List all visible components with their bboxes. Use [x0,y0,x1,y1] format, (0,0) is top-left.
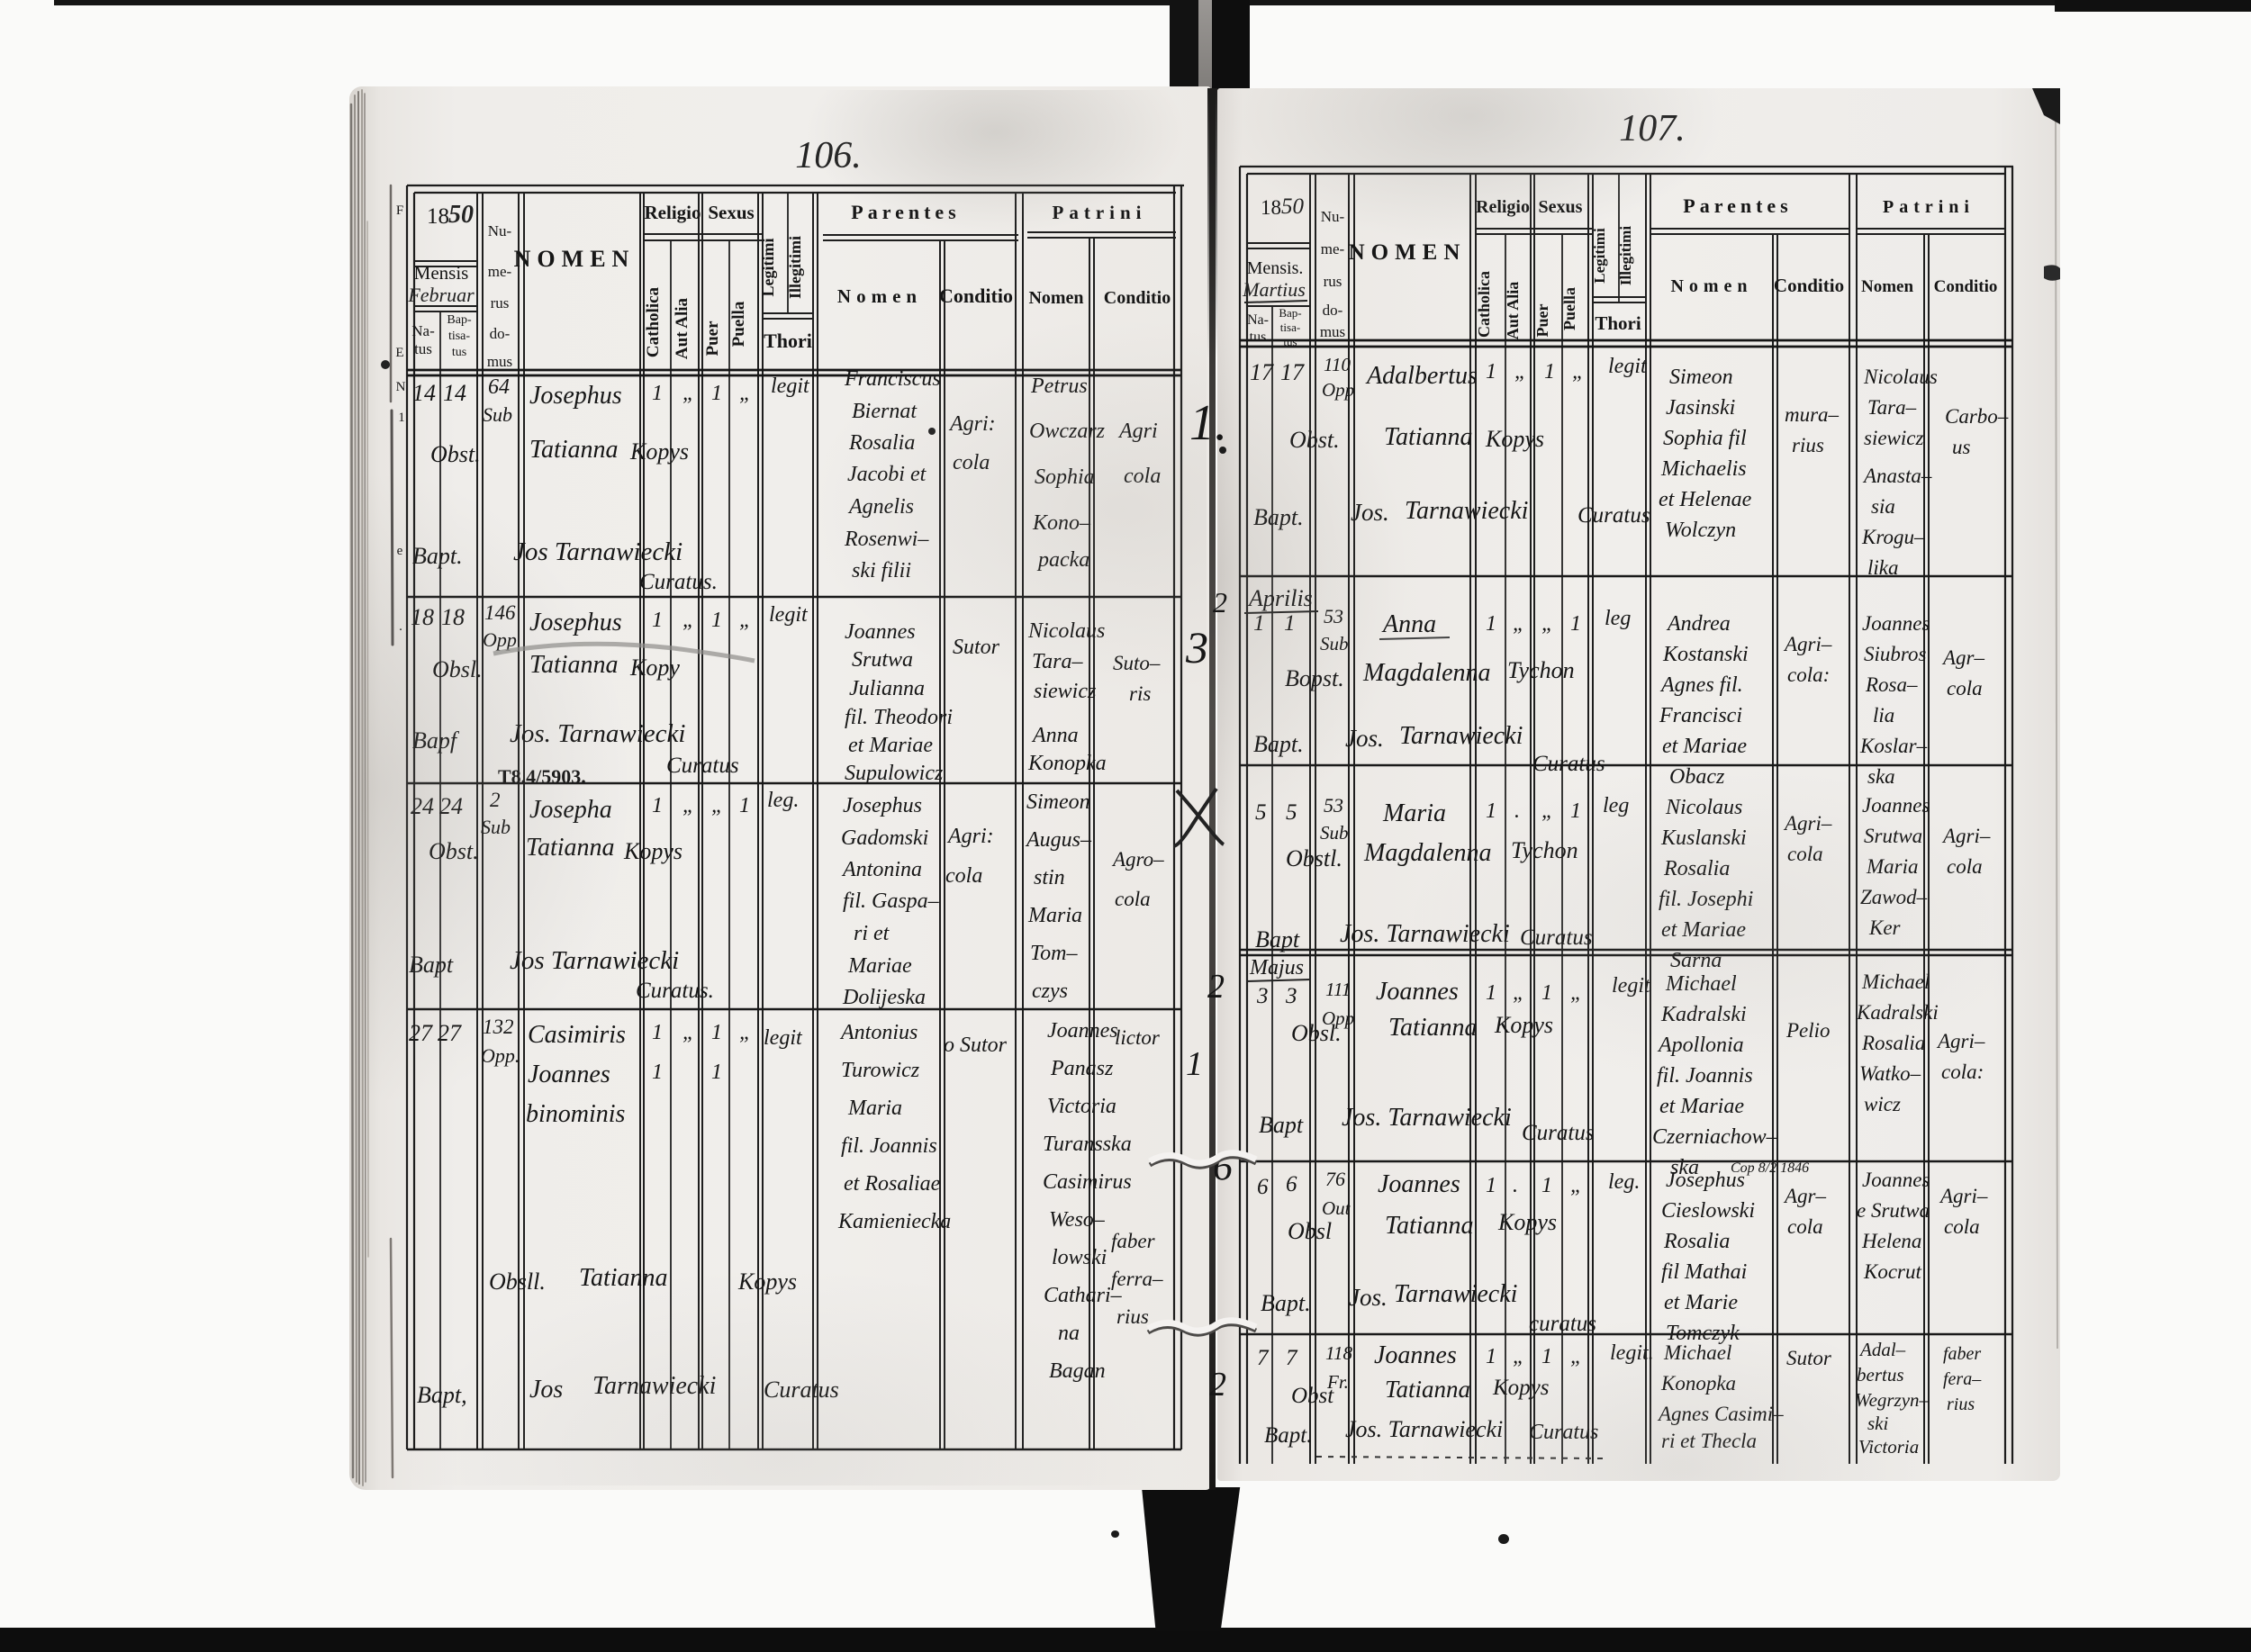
svg-text:„: „ [683,382,694,405]
svg-text:Bapt,: Bapt, [417,1382,467,1408]
svg-text:Tara–: Tara– [1032,650,1083,673]
svg-text:Obst: Obst [1291,1384,1334,1408]
svg-text:Curatus: Curatus [666,754,739,778]
svg-text:faber: faber [1943,1344,1981,1364]
svg-text:Kadralski: Kadralski [1856,1001,1939,1024]
svg-text:Sutor: Sutor [953,636,1000,659]
svg-text:Francisci: Francisci [1659,704,1742,727]
svg-text:cola:: cola: [1787,664,1830,686]
svg-text:Kono–: Kono– [1032,511,1091,535]
svg-text:Joannes: Joannes [845,620,916,644]
svg-text:Sexus: Sexus [708,202,754,223]
svg-text:27: 27 [409,1020,433,1046]
svg-text:Petrus: Petrus [1030,375,1088,398]
svg-text:cola: cola [1947,855,1983,878]
svg-text:Conditio: Conditio [1774,275,1844,296]
svg-text:24: 24 [411,793,434,819]
svg-text:1: 1 [711,609,722,632]
svg-text:Agri:: Agri: [948,412,996,436]
svg-text:1: 1 [1186,1045,1203,1083]
svg-text:Joannes: Joannes [1862,612,1930,635]
svg-text:Agri–: Agri– [1783,812,1832,835]
svg-text:Bapt: Bapt [1255,926,1300,952]
svg-text:me-: me- [488,263,512,280]
svg-text:1: 1 [652,794,663,817]
svg-text:Nicolaus: Nicolaus [1027,619,1105,643]
svg-text:5: 5 [1286,800,1297,825]
svg-text:Tarnawiecki: Tarnawiecki [1399,722,1523,750]
svg-text:„: „ [711,794,723,817]
svg-text:et Rosaliae: et Rosaliae [844,1172,941,1196]
svg-text:Curatus.: Curatus. [639,570,718,594]
svg-text:Nomen: Nomen [1028,288,1083,308]
svg-text:tus: tus [452,346,466,359]
svg-text:Simeon: Simeon [1669,366,1733,389]
svg-text:Adal–: Adal– [1858,1339,1906,1360]
svg-text:legit: legit [764,1026,803,1050]
svg-text:N: N [396,380,406,394]
svg-text:Tom–: Tom– [1030,942,1078,965]
svg-text:Agnes Casimi–: Agnes Casimi– [1657,1403,1784,1425]
svg-text:Religio: Religio [1476,197,1530,217]
svg-text:Kopys: Kopys [1485,426,1544,452]
svg-text:Maria: Maria [1027,904,1082,927]
svg-text:Kopys: Kopys [1497,1209,1557,1235]
svg-text:rus: rus [1324,273,1342,290]
svg-text:Nu-: Nu- [1321,208,1345,225]
svg-text:Turansska: Turansska [1043,1133,1132,1156]
svg-text:Agri–: Agri– [1939,1185,1988,1207]
svg-text:Bopst.: Bopst. [1285,665,1344,691]
svg-text:1: 1 [1486,799,1496,823]
svg-text:Krogu–: Krogu– [1861,526,1925,548]
svg-text:Joannes: Joannes [1378,1170,1460,1198]
svg-text:Jos.: Jos. [1349,1284,1388,1311]
svg-text:2: 2 [1209,1366,1226,1404]
svg-text:F: F [396,203,403,218]
svg-text:Curatus: Curatus [1522,1121,1595,1145]
svg-text:Tarnawiecki: Tarnawiecki [592,1372,716,1400]
svg-text:Sophia fil: Sophia fil [1663,427,1747,450]
svg-text:Tatianna: Tatianna [1388,1014,1478,1042]
svg-text:lika: lika [1867,556,1899,579]
svg-text:Thori: Thori [764,329,812,352]
svg-text:Kuslanski: Kuslanski [1660,826,1747,850]
svg-text:Aut Alia: Aut Alia [1504,282,1522,340]
svg-text:Opp: Opp [1322,379,1354,401]
svg-text:24: 24 [439,793,463,819]
svg-text:Kopys: Kopys [737,1268,797,1295]
svg-text:Adalbertus: Adalbertus [1365,362,1478,390]
svg-text:Curatus.: Curatus. [636,979,714,1003]
svg-text:cola: cola [945,864,982,888]
svg-text:18: 18 [1261,196,1281,219]
svg-text:Bapt.: Bapt. [1264,1423,1312,1448]
svg-text:NOMEN: NOMEN [1349,240,1467,265]
svg-text:fil Mathai: fil Mathai [1661,1260,1747,1284]
svg-text:Antonius: Antonius [839,1021,918,1044]
svg-text:tisa-: tisa- [1280,320,1300,334]
svg-text:mura–: mura– [1785,403,1840,426]
svg-text:76: 76 [1325,1168,1345,1190]
svg-text:Legitimi: Legitimi [759,239,777,297]
svg-text:Jos Tarnawiecki: Jos Tarnawiecki [513,537,683,566]
svg-text:Supulowicz: Supulowicz [845,762,944,785]
svg-text:Kopy: Kopy [629,654,680,681]
svg-text:ska: ska [1867,765,1895,788]
svg-text:Mariae: Mariae [847,954,912,978]
svg-text:Gadomski: Gadomski [841,826,928,850]
svg-text:Franciscus: Franciscus [844,367,941,391]
svg-text:„: „ [739,382,751,405]
svg-text:Sub: Sub [483,403,512,426]
svg-text:et Mariae: et Mariae [1661,918,1746,942]
svg-text:1: 1 [1486,612,1496,636]
svg-text:Jos.: Jos. [1351,499,1389,526]
svg-text:106.: 106. [795,135,862,176]
svg-text:Tatianna: Tatianna [526,834,615,862]
svg-text:Anna: Anna [1031,724,1079,747]
svg-text:Puella: Puella [1560,287,1578,330]
svg-text:1: 1 [1486,981,1496,1005]
svg-text:Anasta–: Anasta– [1862,465,1932,487]
svg-text:Tychon: Tychon [1511,837,1578,863]
svg-text:Panasz: Panasz [1050,1057,1114,1080]
svg-text:Michael: Michael [1665,972,1737,996]
svg-text:Wegrzyn–: Wegrzyn– [1855,1389,1930,1411]
svg-text:legit.: legit. [1610,1341,1654,1365]
svg-text:1: 1 [1486,1174,1496,1197]
svg-text:Bapf: Bapf [412,727,460,754]
svg-text:Josephus: Josephus [529,382,622,410]
svg-text:„: „ [1572,360,1584,384]
svg-text:siewicz: siewicz [1864,427,1923,449]
svg-text:1: 1 [1486,1345,1496,1368]
svg-text:Maria: Maria [1866,855,1919,878]
svg-text:binominis: binominis [526,1100,626,1128]
svg-text:Kocrut: Kocrut [1863,1260,1922,1283]
svg-text:Opp.: Opp. [481,1044,520,1067]
svg-text:1: 1 [711,1021,722,1044]
svg-text:Parentes: Parentes [1683,194,1792,217]
svg-text:Conditio: Conditio [939,284,1013,307]
svg-text:Casimiris: Casimiris [528,1021,626,1049]
svg-text:Agr–: Agr– [1941,646,1985,669]
svg-text:leg: leg [1605,607,1631,630]
svg-text:Jos.: Jos. [1345,725,1384,752]
svg-text:„: „ [1570,981,1582,1005]
svg-text:lowski: lowski [1052,1246,1107,1269]
svg-text:rius: rius [1792,434,1824,456]
svg-text:Srutwa: Srutwa [852,648,913,672]
svg-text:Carbo–: Carbo– [1945,405,2009,428]
svg-text:Joannes: Joannes [1376,978,1459,1006]
svg-text:leg.: leg. [767,789,799,812]
svg-text:Obsl.: Obsl. [1291,1020,1342,1046]
svg-text:do-: do- [490,325,511,342]
svg-text:NOMEN: NOMEN [514,246,636,272]
svg-text:Kopys: Kopys [629,438,689,465]
svg-text:et Mariae: et Mariae [848,734,933,757]
svg-text:14: 14 [443,380,466,406]
svg-text:Michael: Michael [1663,1341,1731,1364]
svg-text:118: 118 [1325,1342,1352,1364]
svg-text:Rosalia: Rosalia [848,431,915,455]
svg-text:111: 111 [1325,979,1351,1000]
svg-text:Tatianna: Tatianna [1385,1212,1474,1240]
svg-text:Jos Tarnawiecki: Jos Tarnawiecki [510,946,679,975]
svg-text:Tatianna: Tatianna [529,651,619,679]
svg-text:Pelio: Pelio [1785,1019,1831,1042]
svg-text:Rosenwi–: Rosenwi– [844,528,929,551]
svg-text:110: 110 [1324,354,1351,375]
svg-text:.: . [1514,799,1520,823]
svg-text:1: 1 [1544,360,1555,384]
svg-text:Thori: Thori [1595,312,1641,334]
svg-text:Joannes: Joannes [1862,1169,1930,1191]
svg-text:1: 1 [1570,612,1581,636]
svg-text:Konopka: Konopka [1660,1372,1736,1395]
svg-text:et Marie: et Marie [1664,1291,1738,1314]
svg-text:curatus: curatus [1529,1312,1596,1336]
svg-text:1: 1 [711,382,722,405]
svg-text:7: 7 [1286,1346,1298,1370]
svg-text:Agri–: Agri– [1936,1030,1985,1052]
svg-text:Agri:: Agri: [946,825,994,848]
svg-text:Catholica: Catholica [644,286,663,357]
svg-text:Parentes: Parentes [851,201,960,223]
svg-text:fil. Joannis: fil. Joannis [1657,1064,1753,1088]
svg-text:Puer: Puer [1533,303,1551,337]
svg-text:Apollonia: Apollonia [1657,1034,1744,1057]
svg-text:Wolczyn: Wolczyn [1665,519,1736,542]
svg-text:18: 18 [411,604,434,630]
svg-text:Bap-: Bap- [447,313,472,327]
svg-text:Tychon: Tychon [1507,657,1575,683]
svg-text:et Mariae: et Mariae [1662,735,1747,758]
svg-text:1: 1 [711,1061,722,1084]
svg-text:e: e [397,544,403,558]
svg-text:18: 18 [427,204,449,229]
svg-text:Josephus: Josephus [529,609,622,636]
svg-text:1.: 1. [1189,395,1227,451]
svg-text:Rosalia: Rosalia [1861,1032,1925,1054]
svg-text:T8.4/5903.: T8.4/5903. [498,765,586,788]
svg-text:me-: me- [1321,240,1345,257]
svg-text:Nu-: Nu- [488,222,512,239]
svg-text:Opp: Opp [483,628,517,651]
svg-text:3: 3 [1285,984,1297,1008]
svg-text:Sophia: Sophia [1035,465,1095,489]
svg-text:Februar: Februar [407,284,475,306]
svg-text:tus: tus [1283,335,1297,348]
svg-text:1: 1 [1284,611,1296,636]
svg-text:Konopka: Konopka [1027,752,1107,775]
svg-text:50: 50 [1281,194,1305,219]
svg-text:Bapt.: Bapt. [1253,504,1304,530]
svg-text:packa: packa [1036,548,1089,572]
svg-text:Joannes: Joannes [1862,794,1930,817]
svg-text:siewicz: siewicz [1034,680,1097,703]
svg-text:Jos. Tarnawiecki: Jos. Tarnawiecki [1345,1416,1503,1442]
svg-text:Simeon: Simeon [1026,790,1090,814]
svg-text:1: 1 [1486,360,1496,384]
svg-text:Tatianna: Tatianna [1385,1376,1470,1403]
svg-text:sia: sia [1871,495,1895,518]
svg-text:Sub: Sub [481,816,511,838]
svg-text:18: 18 [441,604,465,630]
svg-text:bertus: bertus [1857,1364,1904,1386]
svg-text:1: 1 [1570,799,1581,823]
svg-text:Obsl.: Obsl. [432,656,483,682]
svg-text:Nicolaus: Nicolaus [1863,366,1938,388]
svg-text:o Sutor: o Sutor [944,1034,1008,1057]
svg-text:Obst.: Obst. [1289,427,1340,453]
svg-text:Jacobi et: Jacobi et [847,463,927,486]
svg-text:3: 3 [1185,622,1208,673]
svg-text:mus: mus [487,353,512,370]
svg-text:„: „ [683,794,694,817]
svg-text:Ker: Ker [1868,916,1902,939]
svg-text:Curatus: Curatus [764,1377,839,1403]
svg-text:Srutwa: Srutwa [1864,825,1922,847]
svg-text:14: 14 [412,380,436,406]
svg-text:Agnes fil.: Agnes fil. [1659,673,1743,697]
svg-text:us: us [1952,436,1971,458]
svg-text:fera–: fera– [1943,1369,1982,1389]
svg-text:Puella: Puella [729,301,748,347]
svg-text:Joannes: Joannes [528,1061,610,1088]
svg-text:Biernat: Biernat [852,400,918,423]
svg-text:1: 1 [652,382,663,405]
svg-text:Magdalenna: Magdalenna [1363,839,1492,867]
svg-text:Rosalia: Rosalia [1663,857,1730,880]
svg-text:1: 1 [1541,1345,1552,1368]
svg-text:27: 27 [438,1020,462,1046]
svg-text:e Srutwa: e Srutwa [1857,1199,1930,1222]
svg-text:Agr–: Agr– [1783,1185,1827,1207]
svg-text:Tara–: Tara– [1867,396,1917,419]
svg-text:do-: do- [1323,302,1343,319]
svg-text:1: 1 [652,1061,663,1084]
svg-text:Anna: Anna [1381,610,1436,638]
svg-text:E: E [395,346,403,360]
svg-text:Czerniachow–: Czerniachow– [1652,1125,1778,1149]
svg-text:Bapt.: Bapt. [1261,1290,1311,1316]
svg-text:Obsll.: Obsll. [489,1268,546,1295]
svg-text:et Helenae: et Helenae [1659,488,1752,511]
svg-text:Tatianna: Tatianna [529,436,619,464]
svg-text:Sub: Sub [1320,633,1349,654]
svg-text:Bapt.: Bapt. [1253,731,1304,757]
svg-text:Sexus: Sexus [1539,197,1583,217]
svg-text:Nomen: Nomen [1670,276,1752,296]
svg-text:„: „ [683,609,694,632]
svg-text:Kostanski: Kostanski [1662,643,1749,666]
svg-text:Jos. Tarnawiecki: Jos. Tarnawiecki [1340,920,1510,948]
svg-text:„: „ [1513,981,1524,1005]
svg-text:Curatus: Curatus [1578,503,1650,528]
svg-text:Illegitimi: Illegitimi [1617,226,1634,285]
svg-text:stin: stin [1034,866,1065,889]
svg-text:.: . [399,619,402,634]
svg-text:.: . [1513,1174,1518,1197]
svg-text:Augus–: Augus– [1025,828,1092,852]
svg-text:Rosa–: Rosa– [1865,673,1918,696]
svg-text:wicz: wicz [1864,1093,1901,1115]
svg-text:Casimirus: Casimirus [1043,1170,1132,1194]
svg-text:132: 132 [483,1016,514,1038]
svg-text:fil. Theodori: fil. Theodori [845,706,953,729]
svg-text:Siubros: Siubros [1864,643,1926,665]
svg-text:cola: cola [953,451,990,474]
svg-text:107.: 107. [1619,108,1686,149]
svg-text:Bapt: Bapt [409,952,454,978]
svg-text:czys: czys [1032,979,1068,1003]
svg-text:Rosalia: Rosalia [1663,1230,1730,1253]
svg-text:„: „ [1513,612,1524,636]
svg-text:Legitimi: Legitimi [1591,228,1608,284]
svg-text:Maria: Maria [847,1097,902,1120]
svg-text:Julianna: Julianna [849,677,925,700]
svg-text:Magdalenna: Magdalenna [1362,659,1491,687]
svg-text:cola: cola [1787,843,1823,865]
svg-text:Out: Out [1322,1197,1352,1219]
svg-text:tisa-: tisa- [448,329,470,343]
svg-text:na: na [1058,1322,1080,1345]
svg-text:Tatianna: Tatianna [579,1264,668,1292]
svg-text:Bagan: Bagan [1049,1359,1106,1383]
svg-text:Kadralski: Kadralski [1660,1003,1747,1026]
svg-text:53: 53 [1324,794,1343,817]
svg-text:Puer: Puer [703,320,722,357]
svg-text:Curatus: Curatus [1532,752,1605,776]
svg-text:leg.: leg. [1608,1170,1640,1194]
svg-text:„: „ [1541,799,1553,823]
svg-text:Aut Alia: Aut Alia [673,297,692,359]
svg-text:Owczarz: Owczarz [1029,420,1106,443]
svg-text:50: 50 [448,201,474,229]
svg-text:„: „ [1570,1345,1582,1368]
svg-text:„: „ [683,1021,694,1044]
svg-text:64: 64 [488,375,510,399]
svg-text:Conditio: Conditio [1934,277,1998,296]
svg-text:1: 1 [1541,981,1552,1005]
svg-text:Victoria: Victoria [1047,1095,1116,1118]
svg-text:Sub: Sub [1320,822,1349,844]
svg-text:et Mariae: et Mariae [1659,1095,1744,1118]
svg-text:legit: legit [771,375,810,398]
svg-text:tus: tus [414,340,432,357]
svg-text:Tatianna: Tatianna [1384,423,1473,451]
svg-text:Nomen: Nomen [837,285,922,307]
svg-text:fil. Joannis: fil. Joannis [841,1134,937,1158]
svg-text:Jos: Jos [529,1376,563,1404]
svg-text:Obacz: Obacz [1669,765,1725,789]
svg-text:Joannes: Joannes [1374,1341,1457,1369]
svg-text:Obsl: Obsl [1288,1218,1332,1244]
svg-text:fil. Gaspa–: fil. Gaspa– [843,889,940,913]
svg-text:Josephus: Josephus [843,794,922,817]
svg-text:Tarnawiecki: Tarnawiecki [1394,1280,1517,1308]
svg-text:cola:: cola: [1941,1061,1984,1083]
svg-text:leg: leg [1603,794,1629,817]
svg-text:ski filii: ski filii [852,559,911,582]
svg-text:ri et: ri et [854,922,890,945]
svg-text:Agnelis: Agnelis [847,495,914,519]
svg-text:6: 6 [1286,1172,1297,1196]
svg-text:2: 2 [1207,968,1225,1006]
